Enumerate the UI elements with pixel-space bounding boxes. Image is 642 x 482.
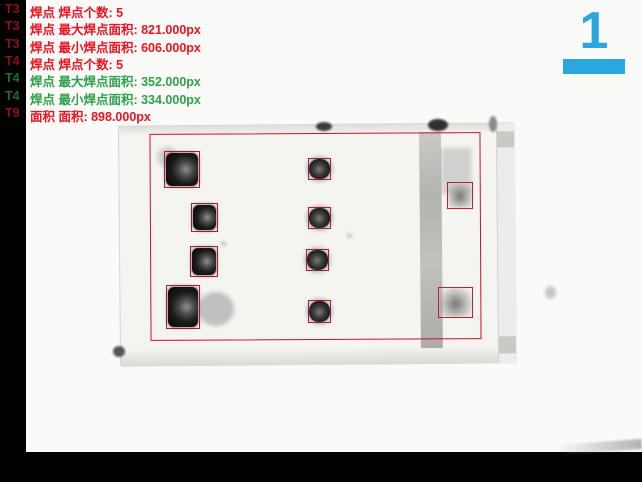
connector-right-endpiece	[496, 123, 517, 363]
detection-box-t4-1	[308, 158, 331, 180]
dirt-smear	[316, 122, 332, 131]
solder-joint-blob	[166, 153, 198, 186]
detection-box-t3-1	[164, 151, 200, 188]
measurement-tag: T9	[5, 106, 20, 120]
solder-joint-blob	[192, 248, 216, 275]
measurement-line: T4焊点 焊点个数: 5	[0, 54, 420, 70]
detection-box-t4-3	[306, 249, 329, 271]
detection-box-t9-2	[438, 287, 473, 318]
solder-joint-blob	[193, 205, 216, 230]
solder-joint-blob	[168, 287, 198, 327]
solder-joint-blob	[309, 159, 330, 179]
dust-speck	[545, 286, 556, 299]
measurement-line: T9面积 面积: 898.000px	[0, 106, 420, 122]
image-index-indicator: 1	[551, 4, 637, 74]
detection-box-t9-1	[447, 182, 473, 209]
measurement-tag: T4	[5, 54, 20, 68]
detection-box-t3-4	[166, 285, 200, 329]
detection-box-t3-2	[191, 203, 218, 232]
dirt-smear	[489, 116, 497, 132]
solder-joint-blob	[309, 301, 330, 322]
measurement-line: T4焊点 最大焊点面积: 352.000px	[0, 71, 420, 87]
detection-box-t3-3	[190, 246, 218, 277]
solder-joint-blob	[448, 183, 472, 208]
measurement-tag: T3	[5, 37, 20, 51]
measurement-line: T3焊点 最小焊点面积: 606.000px	[0, 37, 420, 53]
measurement-tag: T3	[5, 19, 20, 33]
image-index-underline	[563, 59, 625, 74]
measurement-tag: T4	[5, 89, 20, 103]
measurement-tag: T3	[5, 2, 20, 16]
measurement-text: 面积 面积: 898.000px	[30, 106, 151, 125]
image-viewer[interactable]: T3焊点 焊点个数: 5T3焊点 最大焊点面积: 821.000pxT3焊点 最…	[0, 0, 642, 482]
connector-right-tab-top	[497, 131, 514, 147]
solder-joint-blob	[439, 288, 472, 317]
measurement-line: T3焊点 焊点个数: 5	[0, 2, 420, 18]
solder-joint-blob	[309, 208, 330, 228]
detection-box-t4-2	[308, 207, 331, 229]
measurement-text: 焊点 最大焊点面积: 821.000px	[30, 19, 201, 38]
dirt-smear	[113, 346, 125, 357]
connector-right-tab-bottom	[499, 336, 516, 353]
dirt-smear	[428, 119, 448, 131]
solder-joint-blob	[307, 250, 328, 270]
measurement-line: T4焊点 最小焊点面积: 334.000px	[0, 89, 420, 105]
measurement-tag: T4	[5, 71, 20, 85]
bottom-black-margin	[0, 452, 642, 482]
measurement-text: 焊点 最大焊点面积: 352.000px	[30, 71, 201, 90]
measurement-line: T3焊点 最大焊点面积: 821.000px	[0, 19, 420, 35]
image-index-number: 1	[551, 4, 637, 58]
detection-box-t4-4	[308, 300, 331, 323]
